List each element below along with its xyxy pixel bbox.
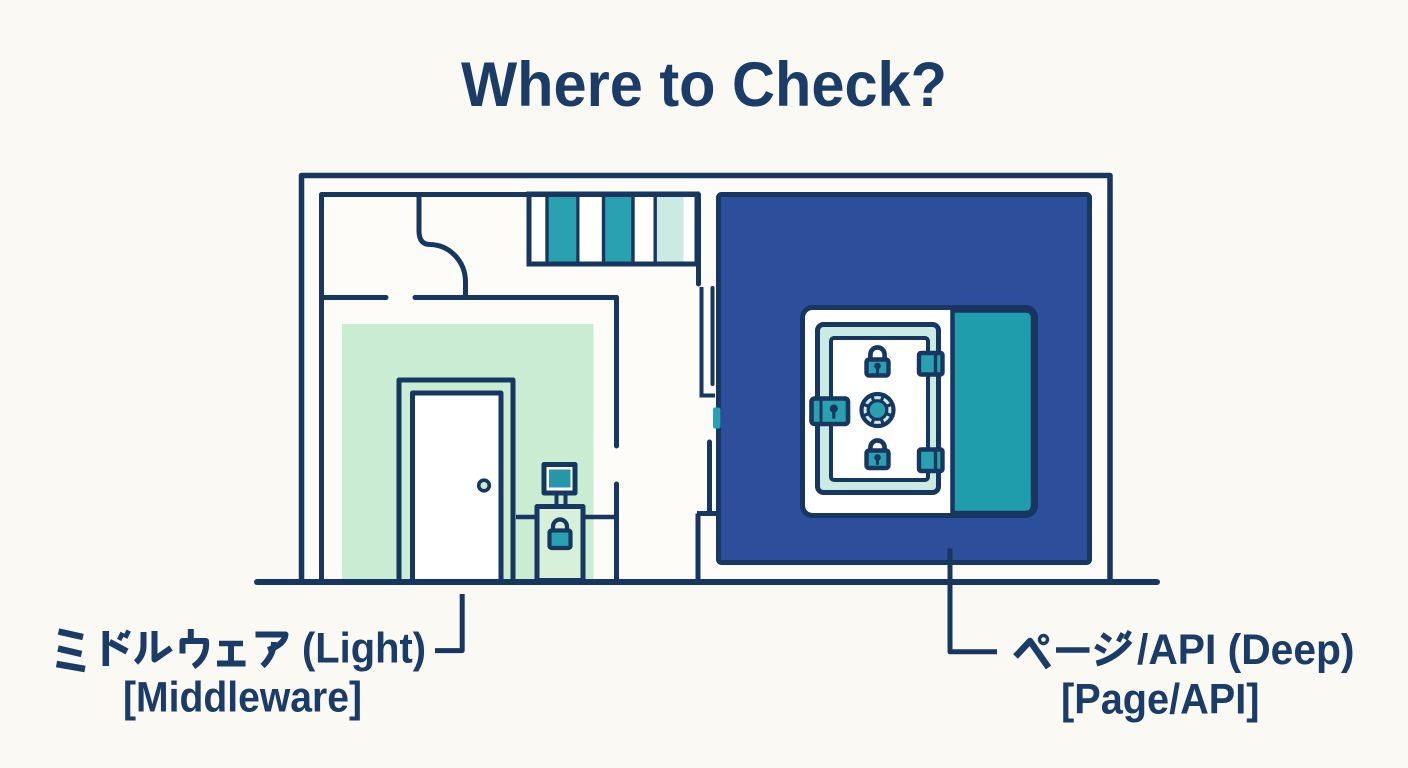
svg-text:/API (Deep): /API (Deep) bbox=[1137, 626, 1355, 674]
svg-text:[Page/API]: [Page/API] bbox=[1061, 676, 1260, 724]
svg-text:[Middleware]: [Middleware] bbox=[123, 674, 362, 722]
svg-text:(Light): (Light) bbox=[302, 625, 426, 673]
svg-text:Where to Check?: Where to Check? bbox=[461, 50, 947, 120]
